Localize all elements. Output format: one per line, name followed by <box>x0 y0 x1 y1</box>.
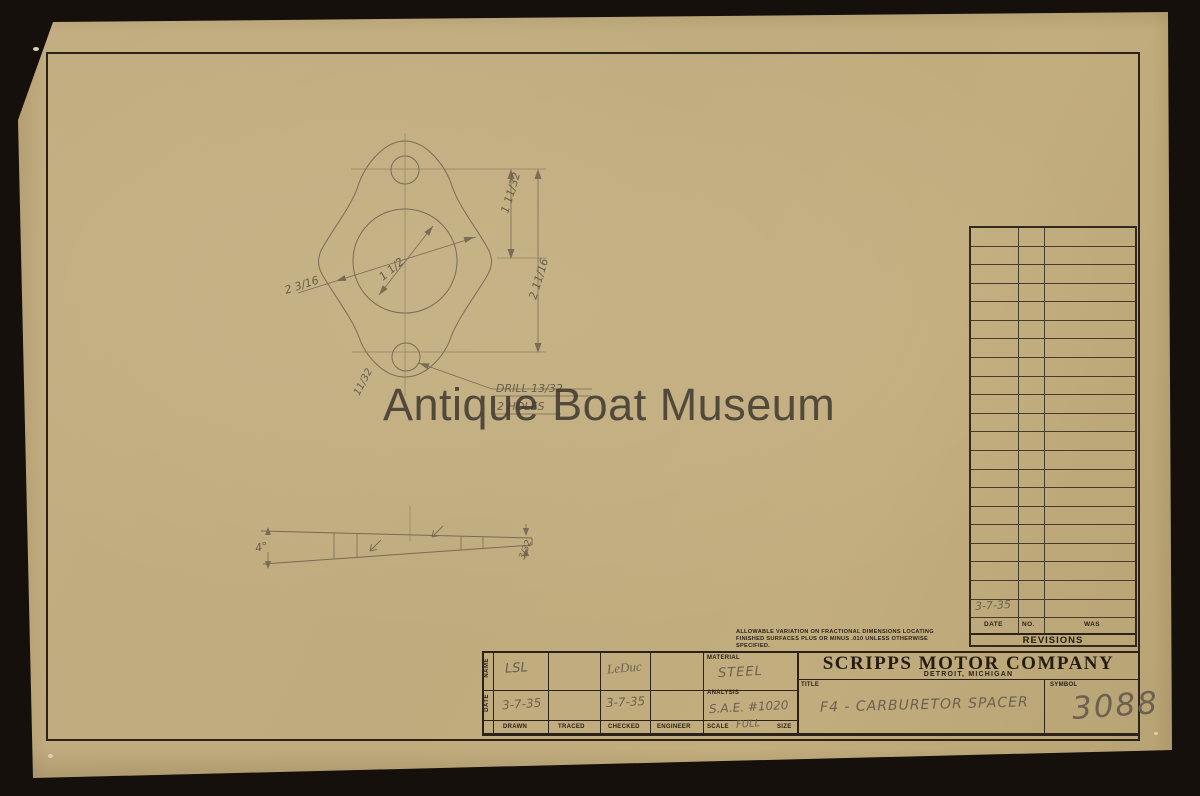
bottom-bolt-hole <box>392 343 420 371</box>
scanned-blueprint-scene: 3-7-35 DATE NO. WAS REVISIONS ALLOWABLE … <box>0 0 1200 796</box>
wedge-bottom-edge <box>263 545 532 564</box>
front-view <box>298 133 592 414</box>
thin-end-thickness-label: 3/32 <box>518 538 535 561</box>
wedge-hole-sections <box>334 533 483 559</box>
dim-thickness-label: 11/32 <box>352 367 375 398</box>
extension-lines <box>351 133 547 396</box>
dim-center-to-hole-label: 1 11/32 <box>498 171 523 215</box>
drill-note-line1: DRILL 13/32 <box>496 382 563 395</box>
dim-bolt-circle-label: 2 3/16 <box>283 274 320 297</box>
finish-mark-arrows <box>370 526 443 551</box>
dim-line-bore <box>379 226 433 295</box>
technical-drawing: 1 11/32 2 11/16 2 3/16 1 1/2 11/32 DRILL… <box>0 0 1200 796</box>
angle-label: 4° <box>254 540 269 555</box>
dim-hole-spacing-label: 2 11/16 <box>526 257 551 301</box>
side-view <box>261 506 532 569</box>
wedge-top-edge <box>261 531 532 538</box>
drill-note-line2: 2 HOLES <box>497 400 545 413</box>
